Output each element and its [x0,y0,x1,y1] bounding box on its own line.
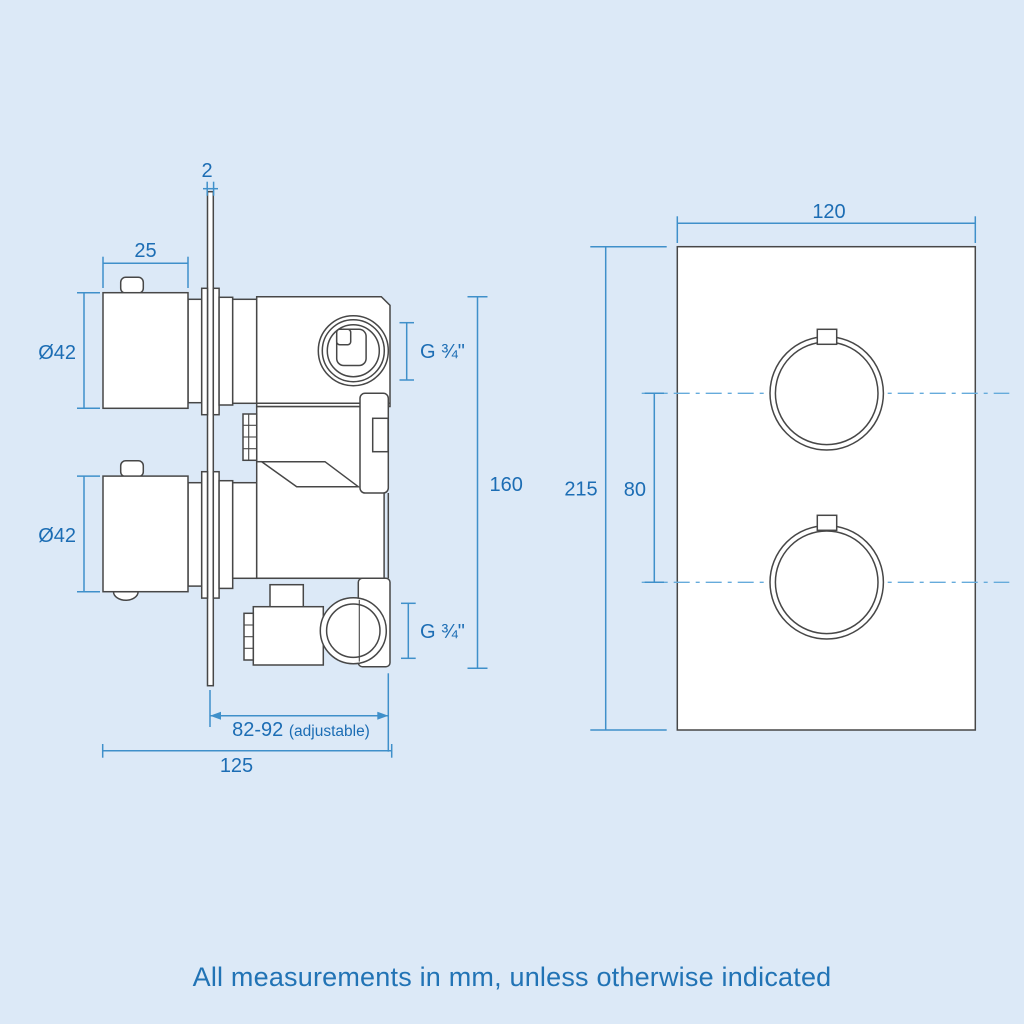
dim-plate-thickness: 2 [201,160,218,196]
bottom-outlet-port [320,598,386,664]
side-view: 2 25 Ø42 Ø42 G ¾" [38,160,523,777]
plate-width-label: 120 [812,201,845,223]
top-outlet-port [318,316,388,386]
plate-thickness-label: 2 [201,160,212,182]
dim-total-depth: 125 [103,744,392,777]
recess-depth-label: 82-92 (adjustable) [232,719,370,741]
front-view: 120 215 80 [564,201,1009,730]
plate-height-label: 215 [564,478,597,500]
dim-plate-height: 215 [564,247,666,730]
dim-plate-width: 120 [677,201,975,243]
bottom-knob [103,461,257,601]
top-knob [103,277,257,414]
dim-recess-depth: 82-92 (adjustable) [210,673,388,751]
units-note: All measurements in mm, unless otherwise… [0,962,1024,993]
dim-knob-depth: 25 [103,240,188,288]
knob-depth-label: 25 [134,240,156,262]
bottom-outlet-thread-label: G ¾" [420,621,465,643]
dim-dial-spacing: 80 [624,393,664,582]
body-height-label: 160 [490,474,523,496]
dial-spacing-label: 80 [624,479,646,501]
technical-drawing-canvas: 2 25 Ø42 Ø42 G ¾" [0,0,1024,1024]
wall-plate [208,192,214,686]
dim-bottom-outlet-thread: G ¾" [401,603,465,658]
top-knob-diameter-label: Ø42 [38,342,76,364]
dim-top-knob-diameter: Ø42 [38,293,100,409]
knob-lever-bump [114,592,139,601]
total-depth-label: 125 [220,755,253,777]
dim-body-height: 160 [468,297,523,669]
dim-bottom-knob-diameter: Ø42 [38,476,100,592]
top-outlet-thread-label: G ¾" [420,341,465,363]
face-plate [677,247,975,730]
dim-top-outlet-thread: G ¾" [400,323,465,380]
bottom-knob-diameter-label: Ø42 [38,525,76,547]
